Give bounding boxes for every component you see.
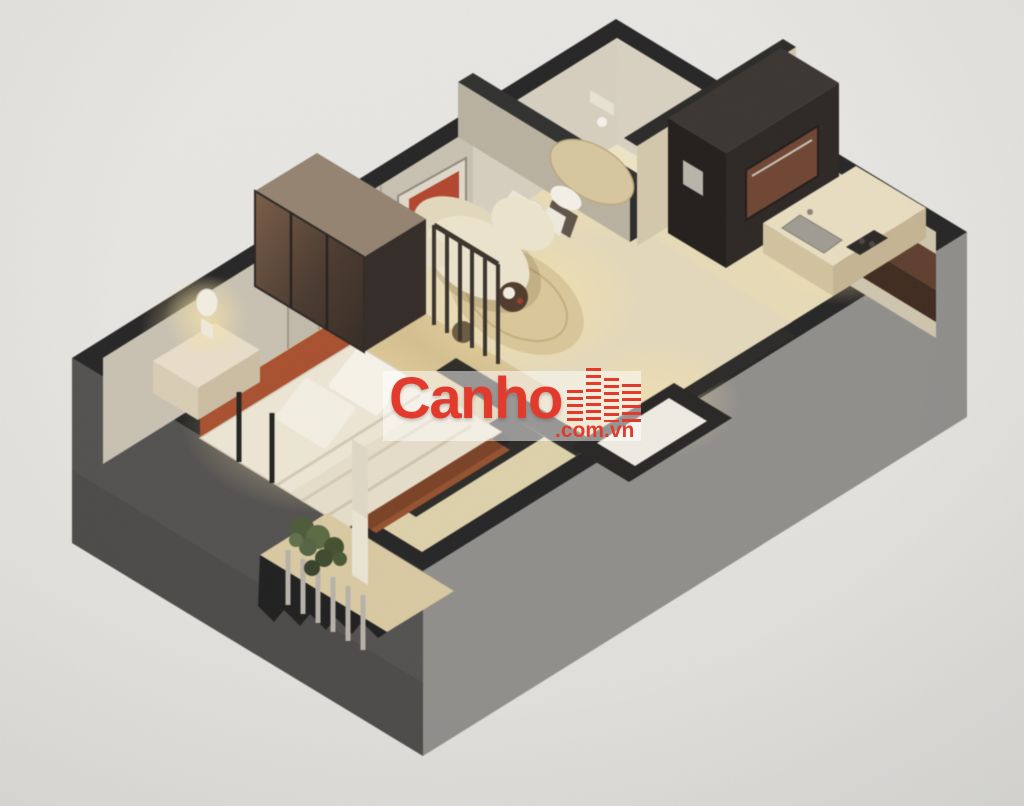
watermark: Canho .com.vn — [383, 364, 649, 456]
skyline-tower — [622, 384, 641, 422]
skyline-tower — [567, 390, 583, 422]
floor-plan-photo: Canho .com.vn — [0, 0, 1024, 806]
skyline-tower — [586, 368, 601, 422]
city-skyline-icon — [567, 366, 643, 422]
watermark-domain-suffix: .com.vn — [555, 420, 634, 441]
skyline-tower — [604, 378, 619, 422]
watermark-brand-text: Canho — [389, 370, 562, 428]
